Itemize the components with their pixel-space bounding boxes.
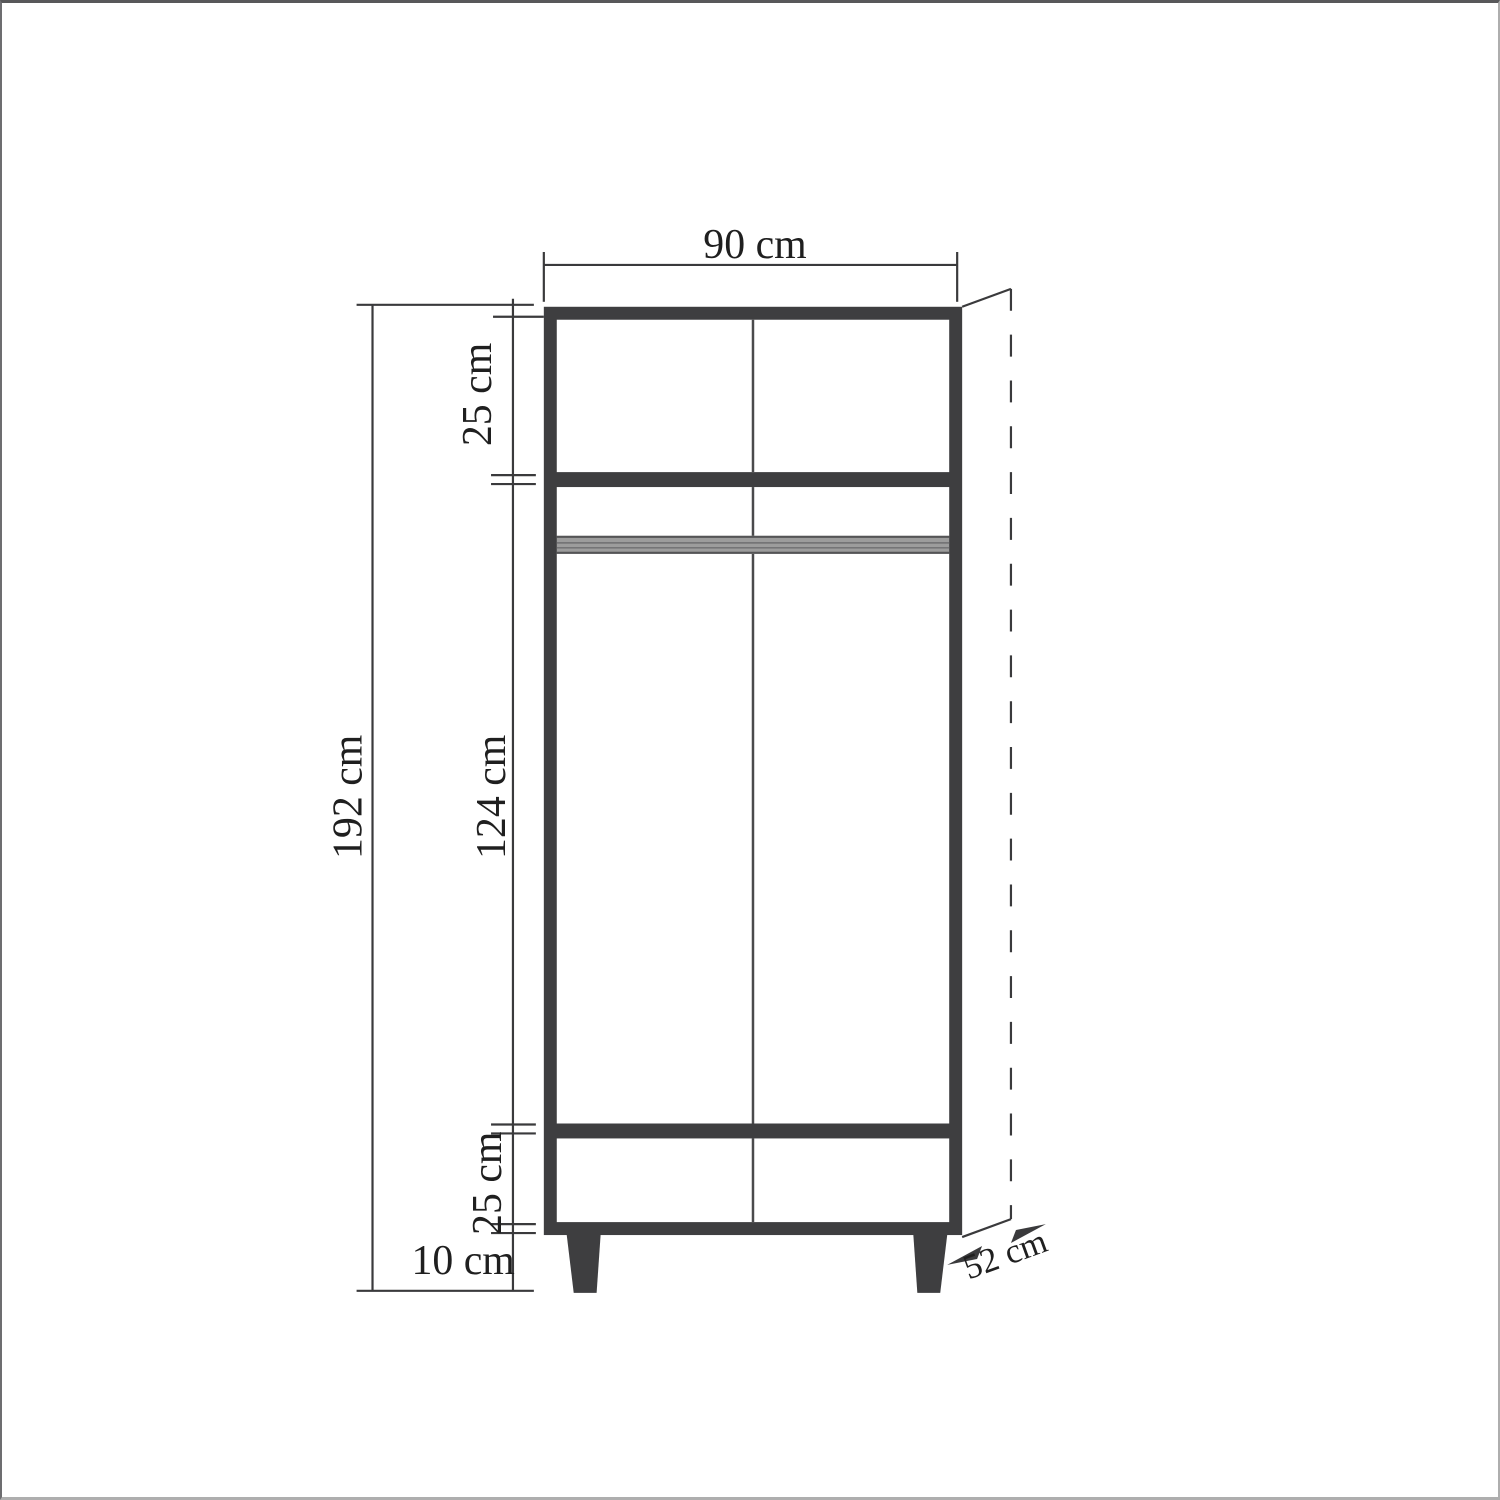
- right-leg: [913, 1235, 947, 1293]
- height-label: 192 cm: [326, 735, 372, 859]
- hanger-rail: [557, 536, 949, 554]
- bottom-section-label: 25 cm: [465, 1132, 511, 1235]
- depth-projection: [962, 289, 1011, 1237]
- top-section-label: 25 cm: [455, 343, 501, 446]
- drawing-canvas: 90 cm 192 cm 25 cm 124 cm 25 cm 10 cm 52…: [0, 0, 1500, 1500]
- depth-label: 52 cm: [958, 1221, 1052, 1287]
- leg-height-label: 10 cm: [411, 1238, 514, 1284]
- wardrobe: [544, 307, 962, 1293]
- wardrobe-dimension-diagram: 90 cm 192 cm 25 cm 124 cm 25 cm 10 cm 52…: [2, 3, 1498, 1497]
- middle-section-label: 124 cm: [469, 735, 515, 859]
- hanger-rail-band: [557, 536, 949, 554]
- width-label: 90 cm: [703, 222, 806, 268]
- depth-top-diagonal: [962, 289, 1011, 307]
- left-leg: [567, 1235, 601, 1293]
